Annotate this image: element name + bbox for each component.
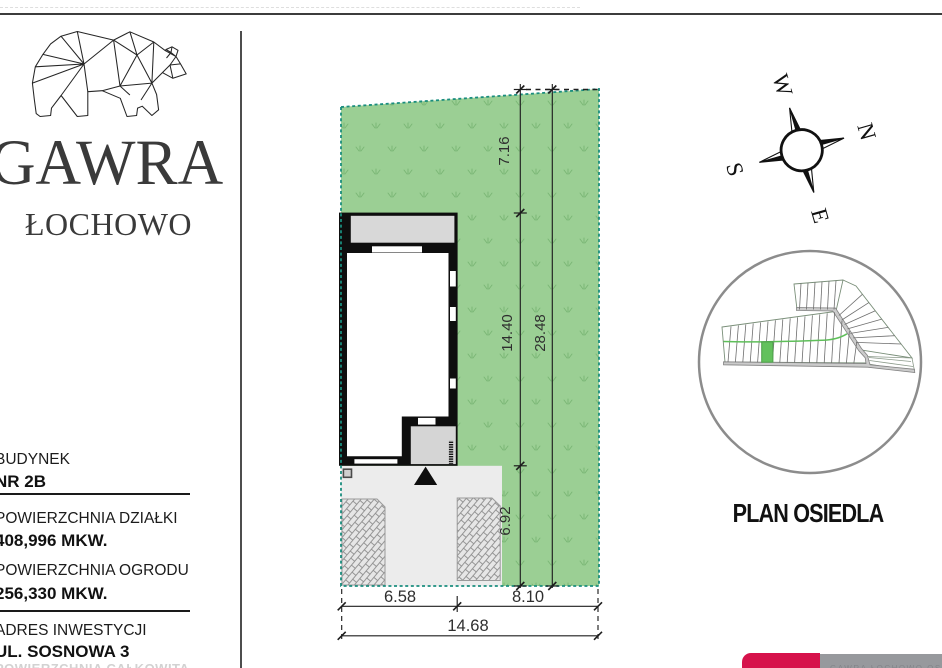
svg-text:E: E [806,205,834,225]
svg-text:14.68: 14.68 [447,617,488,635]
svg-text:14.40: 14.40 [499,314,516,352]
svg-text:N: N [852,120,881,143]
svg-text:S: S [721,160,749,179]
svg-text:28.48: 28.48 [532,314,549,352]
svg-text:6.92: 6.92 [497,506,514,535]
svg-text:W: W [767,71,797,99]
svg-text:7.16: 7.16 [496,136,513,165]
svg-text:8.10: 8.10 [512,588,544,606]
svg-text:6.58: 6.58 [384,588,416,606]
